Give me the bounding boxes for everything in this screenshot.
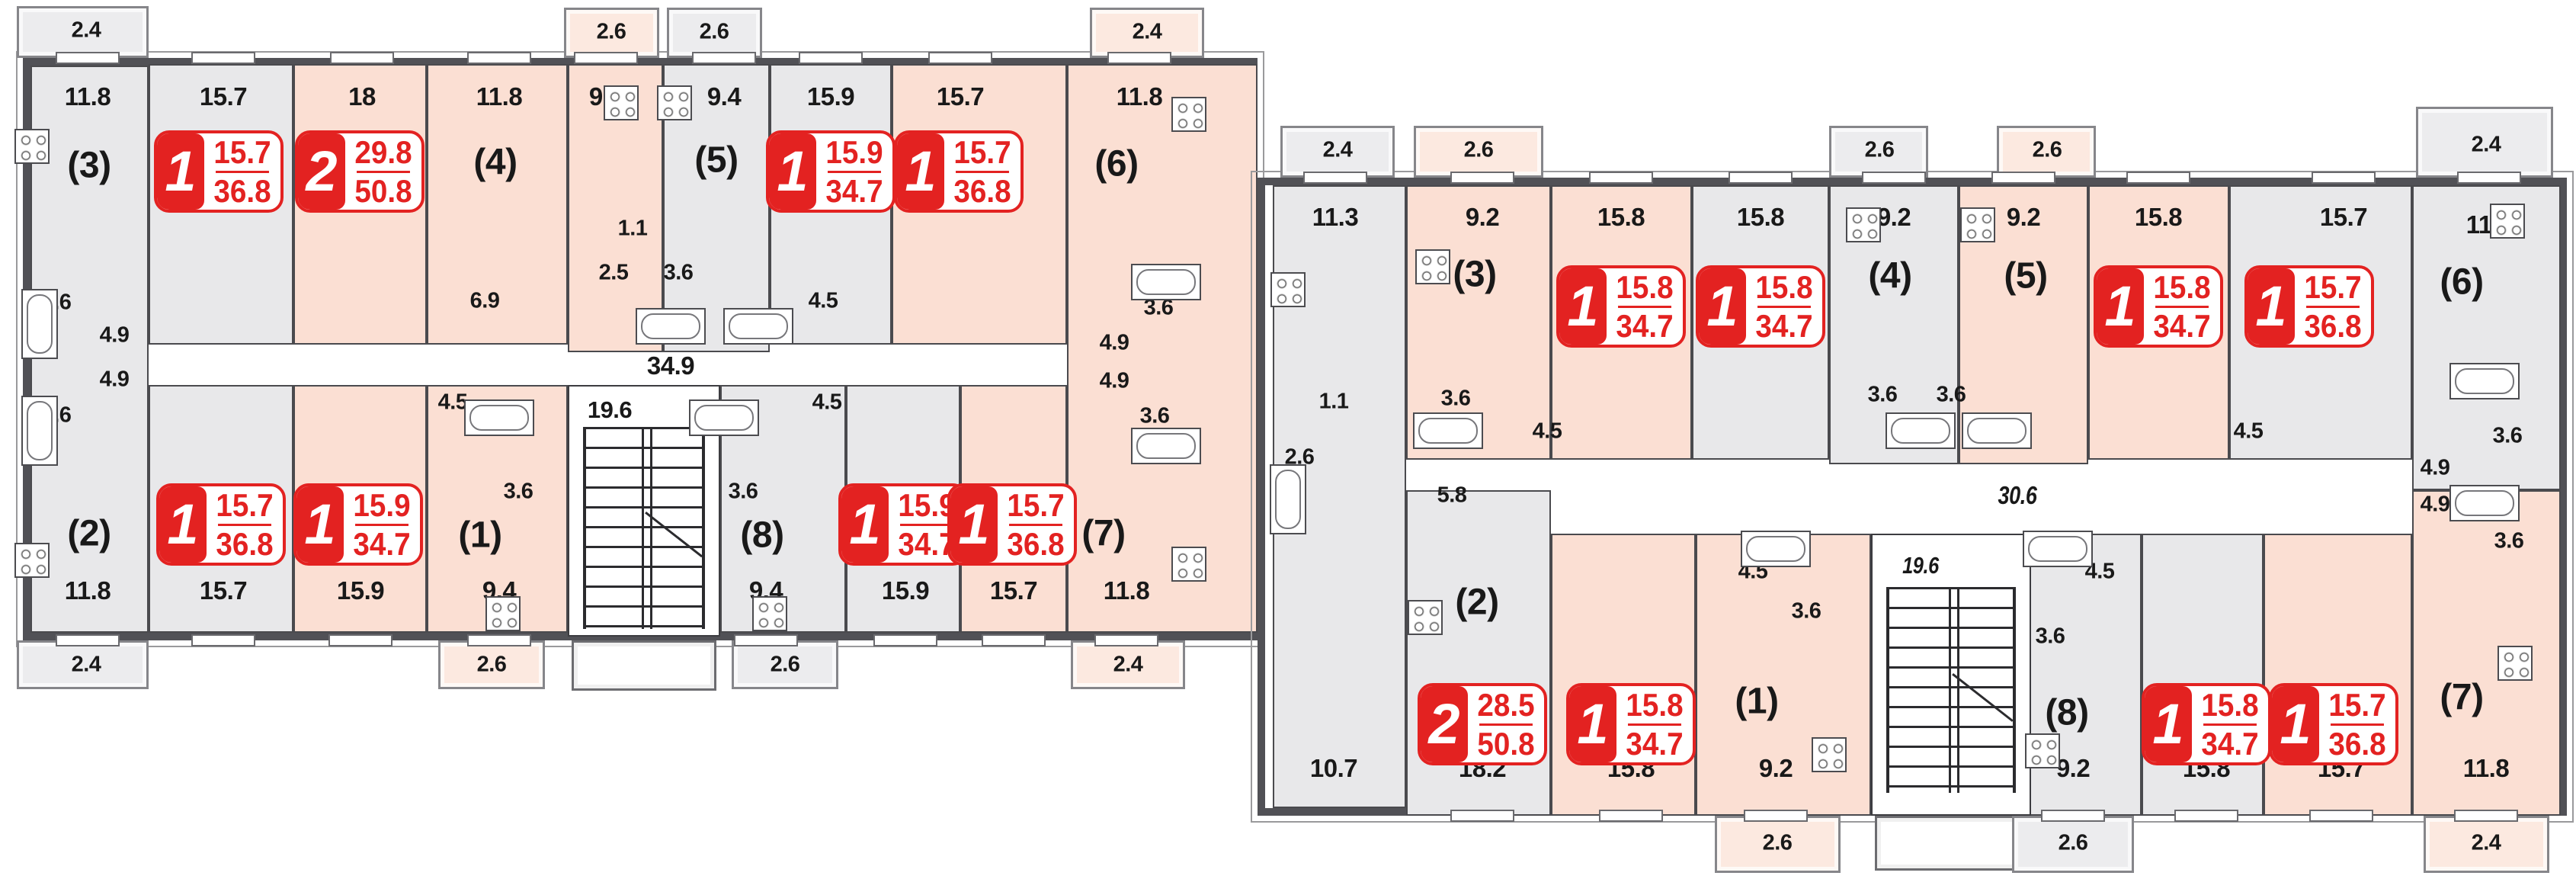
badge-total-area: 36.8: [953, 175, 1011, 207]
room-area-label: 9.2: [2056, 754, 2090, 783]
room-area-label: 10.7: [1310, 754, 1357, 783]
apartment-number-label: (2): [67, 513, 111, 555]
apartment-number-label: (4): [1868, 255, 1911, 297]
apartment-number-label: (2): [1455, 582, 1498, 624]
floor-plan-canvas: 2.42.62.62.42.42.62.62.411.815.71811.89.…: [0, 0, 2576, 879]
tub-icon: [1131, 264, 1201, 300]
balcony-area-label: 2.6: [700, 20, 729, 45]
balcony-area-label: 2.6: [2033, 138, 2062, 163]
hall-area-label: 4.5: [809, 289, 838, 314]
room-area-label: 18: [348, 82, 376, 111]
badge-areas: 29.850.8: [348, 133, 418, 210]
window: [873, 634, 937, 646]
window: [1991, 172, 2055, 184]
tub-icon: [21, 289, 58, 359]
hall-area-label: 3.6: [2494, 529, 2524, 554]
badge-total-area: 34.7: [1755, 310, 1812, 342]
window: [1599, 810, 1663, 822]
window: [1589, 172, 1653, 184]
room-area-label: 15.7: [990, 576, 1037, 605]
window: [56, 634, 120, 646]
balcony-area-label: 2.6: [477, 653, 507, 678]
tub-icon: [2449, 363, 2520, 399]
badge-areas: 15.934.7: [347, 486, 417, 563]
room-area-label: 15.8: [1597, 203, 1645, 232]
badge-living-area: 15.9: [353, 489, 410, 521]
hall-area-label: 4.5: [438, 390, 468, 415]
tub-icon: [723, 308, 793, 345]
badge-areas: 15.736.8: [947, 133, 1017, 210]
stove-icon: [1960, 207, 1995, 242]
badge-living-area: 15.8: [1755, 271, 1812, 303]
badge-total-area: 50.8: [354, 175, 412, 207]
hall-area-label: 4.5: [812, 390, 842, 415]
badge-room-count: 1: [950, 486, 998, 563]
entrance-porch: [572, 640, 716, 691]
hall-area-label: 3.6: [1792, 599, 1821, 624]
hall-area-label: 3.6: [664, 261, 694, 286]
badge-areas: 15.736.8: [207, 133, 277, 210]
badge-total-area: 36.8: [2328, 728, 2385, 760]
hall-area-label: 2.5: [599, 261, 629, 286]
stove-icon: [14, 129, 50, 164]
badge-areas: 15.834.7: [2195, 686, 2265, 762]
badge-areas: 15.736.8: [2322, 686, 2392, 762]
stove-icon: [1846, 207, 1881, 242]
window: [799, 52, 863, 64]
badge-total-area: 34.7: [2201, 728, 2258, 760]
badge-living-area: 15.8: [1616, 271, 1673, 303]
hall-area-label: 3.6: [729, 480, 758, 505]
badge-areas: 15.834.7: [1610, 268, 1680, 345]
tub-icon: [1131, 428, 1201, 464]
balcony-area-label: 2.4: [2472, 133, 2501, 158]
apartment-area-badge[interactable]: 115.834.7: [1696, 265, 1825, 348]
window: [574, 52, 638, 64]
hall-area-label: 4.9: [2421, 492, 2450, 518]
stove-icon: [604, 85, 639, 120]
badge-total-area: 34.7: [825, 175, 883, 207]
window: [1729, 172, 1793, 184]
balcony-area-label: 2.4: [2472, 831, 2501, 856]
balcony-area-label: 2.6: [1865, 138, 1895, 163]
balcony-area-label: 2.6: [1763, 831, 1793, 856]
apartment-area-badge[interactable]: 115.834.7: [2142, 683, 2271, 765]
window: [1107, 52, 1171, 64]
apartment-area-badge[interactable]: 115.934.7: [766, 130, 896, 213]
hall-area-label: 4.9: [1100, 331, 1129, 356]
room-area-label: 9.2: [1466, 203, 1499, 232]
badge-room-count: 2: [298, 133, 345, 210]
stove-icon: [1415, 249, 1450, 284]
window: [467, 52, 531, 64]
tub-icon: [21, 396, 58, 466]
badge-living-area: 15.7: [213, 136, 271, 168]
room-area-label: 15.8: [1737, 203, 1784, 232]
badge-total-area: 36.8: [213, 175, 271, 207]
badge-total-area: 34.7: [353, 528, 410, 560]
badge-room-count: 1: [1559, 268, 1607, 345]
stove-icon: [2498, 646, 2533, 681]
balcony-area-label: 2.4: [1113, 653, 1143, 678]
window: [928, 52, 992, 64]
window: [1450, 172, 1514, 184]
badge-total-area: 50.8: [1477, 728, 1534, 760]
hall-area-label: 3.6: [2493, 424, 2523, 449]
stove-icon: [2025, 733, 2060, 768]
stove-icon: [1812, 737, 1847, 772]
badge-living-area: 15.7: [2304, 271, 2361, 303]
hall-area-label: 1.1: [1319, 390, 1349, 415]
window: [692, 52, 756, 64]
balcony-area-label: 2.4: [72, 653, 101, 678]
apartment-number-label: (6): [1094, 143, 1138, 185]
hall-area-label: 4.9: [1100, 369, 1129, 394]
stove-icon: [657, 85, 692, 120]
apartment-number-label: (1): [458, 515, 501, 557]
badge-living-area: 28.5: [1477, 689, 1534, 721]
badge-areas: 15.934.7: [819, 133, 889, 210]
tub-icon: [1413, 412, 1483, 449]
apartment-number-label: (5): [2004, 255, 2047, 297]
badge-living-area: 15.8: [2201, 689, 2258, 721]
badge-room-count: 2: [1421, 686, 1468, 762]
room-area-label: 11.8: [65, 82, 111, 111]
corridor-area-label: 30.6: [1998, 481, 2036, 510]
room-area-label: 11.3: [1312, 203, 1358, 232]
badge-areas: 15.736.8: [2298, 268, 2368, 345]
badge-room-count: 1: [897, 133, 944, 210]
badge-living-area: 15.9: [825, 136, 883, 168]
corridor-area-label: 34.9: [647, 351, 694, 380]
window: [2454, 810, 2518, 822]
stair-treads: [1886, 587, 2016, 793]
apartment-area-badge[interactable]: 115.736.8: [894, 130, 1024, 213]
badge-areas: 15.834.7: [2147, 268, 2217, 345]
window: [191, 634, 255, 646]
room-area-label: 11.8: [476, 82, 522, 111]
window: [2309, 810, 2373, 822]
badge-room-count: 1: [1699, 268, 1746, 345]
apartment-number-label: (7): [2440, 677, 2483, 719]
badge-total-area: 36.8: [2304, 310, 2361, 342]
badge-room-count: 1: [2097, 268, 2144, 345]
room-area-label: 15.9: [882, 576, 929, 605]
window: [467, 634, 531, 646]
hall-area-label: 4.9: [100, 323, 130, 348]
apartment-area-badge[interactable]: 115.834.7: [2094, 265, 2223, 348]
tub-icon: [1886, 412, 1956, 449]
window: [1450, 810, 1514, 822]
apartment-area-badge[interactable]: 229.850.8: [295, 130, 425, 213]
entrance-porch: [1875, 816, 2027, 871]
apartment-area-badge[interactable]: 228.550.8: [1418, 683, 1547, 765]
hall-area-label: 1.1: [618, 217, 648, 242]
tub-icon: [689, 399, 759, 436]
hall-area-label: 3.6: [2036, 624, 2065, 650]
room-area-label: 15.9: [337, 576, 384, 605]
balcony-area-label: 2.6: [771, 653, 800, 678]
window: [56, 52, 120, 64]
badge-room-count: 1: [2145, 686, 2192, 762]
badge-room-count: 1: [296, 486, 344, 563]
badge-total-area: 34.7: [1626, 728, 1683, 760]
apartment-area-badge[interactable]: 115.736.8: [154, 130, 284, 213]
apartment-number-label: (8): [740, 515, 783, 557]
hall-area-label: 3.6: [504, 480, 533, 505]
stairs-area-label: 19.6: [588, 396, 632, 424]
apartment-area-badge[interactable]: 115.736.8: [2244, 265, 2374, 348]
badge-total-area: 34.7: [2153, 310, 2210, 342]
balcony-area-label: 2.6: [2059, 831, 2088, 856]
room-area-label: 11.8: [2463, 754, 2509, 783]
room-area-label: 9.4: [707, 82, 741, 111]
hall-area-label: 3.6: [1868, 383, 1898, 408]
badge-room-count: 1: [769, 133, 816, 210]
apartment-area-badge[interactable]: 115.736.8: [947, 483, 1077, 566]
badge-room-count: 1: [2272, 686, 2319, 762]
room-area-label: 15.7: [937, 82, 984, 111]
stove-icon: [1171, 97, 1206, 132]
window: [1744, 810, 1808, 822]
tub-icon: [2449, 485, 2520, 521]
apartment-area-badge[interactable]: 115.736.8: [156, 483, 286, 566]
tub-icon: [2023, 531, 2093, 567]
room-area-label: 15.7: [200, 82, 247, 111]
stair-treads: [583, 427, 705, 629]
badge-room-count: 1: [1569, 686, 1616, 762]
hall-area-label: 6.9: [470, 289, 500, 314]
window: [1862, 172, 1926, 184]
hall-area-label: 3.6: [1441, 387, 1471, 412]
badge-living-area: 15.7: [216, 489, 273, 521]
window: [2126, 172, 2190, 184]
window: [734, 634, 798, 646]
apartment-area-badge[interactable]: 115.934.7: [293, 483, 423, 566]
badge-living-area: 15.7: [2328, 689, 2385, 721]
apartment-number-label: (1): [1735, 681, 1778, 723]
stove-icon: [2490, 204, 2525, 239]
apartment-number-label: (4): [473, 142, 517, 184]
window: [328, 634, 392, 646]
stove-icon: [1270, 272, 1306, 307]
badge-living-area: 15.8: [2153, 271, 2210, 303]
stove-icon: [485, 596, 521, 631]
badge-living-area: 15.7: [953, 136, 1011, 168]
room-area-label: 11.8: [65, 576, 111, 605]
room-area-label: 15.7: [2320, 203, 2367, 232]
room-area-label: 9.2: [2007, 203, 2040, 232]
stove-icon: [752, 596, 787, 631]
tub-icon: [1270, 464, 1306, 534]
badge-room-count: 1: [841, 486, 889, 563]
stove-icon: [14, 543, 50, 578]
room-area-label: 11.8: [1117, 82, 1162, 111]
hall-area-label: 3.6: [1140, 404, 1170, 429]
stove-icon: [1408, 600, 1443, 635]
balcony-area-label: 2.4: [72, 18, 101, 43]
stove-icon: [1171, 547, 1206, 582]
room-area-label: 9.2: [1877, 203, 1911, 232]
badge-total-area: 36.8: [1007, 528, 1064, 560]
balcony-area-label: 2.4: [1323, 138, 1353, 163]
room-area-label: 15.8: [2135, 203, 2182, 232]
room-area-label: 15.9: [807, 82, 854, 111]
apartment-number-label: (3): [1453, 254, 1496, 296]
hall-area-label: 4.9: [100, 367, 130, 393]
apartment-number-label: (3): [67, 145, 111, 187]
badge-areas: 15.736.8: [210, 486, 280, 563]
badge-areas: 15.834.7: [1749, 268, 1819, 345]
tub-icon: [636, 308, 706, 345]
badge-areas: 15.834.7: [1620, 686, 1690, 762]
window: [2312, 172, 2376, 184]
badge-total-area: 36.8: [216, 528, 273, 560]
badge-living-area: 29.8: [354, 136, 412, 168]
badge-living-area: 15.8: [1626, 689, 1683, 721]
hall-area-label: 4.5: [2234, 419, 2264, 444]
apartment-area-badge[interactable]: 115.736.8: [2269, 683, 2398, 765]
apartment-number-label: (5): [694, 140, 738, 181]
window: [982, 634, 1046, 646]
badge-living-area: 15.7: [1007, 489, 1064, 521]
apartment-number-label: (6): [2440, 261, 2483, 303]
window: [2174, 810, 2238, 822]
badge-room-count: 1: [159, 486, 207, 563]
room-area-label: 11.8: [1104, 576, 1149, 605]
room-area-label: 9.2: [1759, 754, 1793, 783]
apartment-area-badge[interactable]: 115.834.7: [1566, 683, 1696, 765]
apartment-number-label: (8): [2045, 692, 2088, 734]
hall-area-label: 4.5: [1533, 419, 1562, 444]
hall-area-label: 5.8: [1437, 483, 1467, 508]
badge-areas: 15.736.8: [1001, 486, 1071, 563]
window: [1094, 634, 1158, 646]
tub-icon: [464, 399, 534, 436]
hall-area-label: 3.6: [1937, 383, 1966, 408]
tub-icon: [1741, 531, 1811, 567]
window: [2041, 810, 2105, 822]
badge-total-area: 34.7: [1616, 310, 1673, 342]
tub-icon: [1962, 412, 2032, 449]
balcony-area-label: 2.4: [1133, 20, 1162, 45]
window: [330, 52, 394, 64]
window: [2457, 172, 2521, 184]
apartment-number-label: (7): [1081, 513, 1125, 555]
balcony-area-label: 2.6: [597, 20, 626, 45]
badge-room-count: 1: [2248, 268, 2295, 345]
window: [1303, 172, 1367, 184]
room-area-label: 15.7: [200, 576, 247, 605]
stairs-area-label: 19.6: [1902, 552, 1939, 579]
hall-area-label: 4.9: [2421, 456, 2450, 481]
window: [191, 52, 255, 64]
badge-areas: 28.550.8: [1471, 686, 1541, 762]
apartment-area-badge[interactable]: 115.834.7: [1556, 265, 1686, 348]
badge-room-count: 1: [157, 133, 204, 210]
balcony-area-label: 2.6: [1464, 138, 1494, 163]
